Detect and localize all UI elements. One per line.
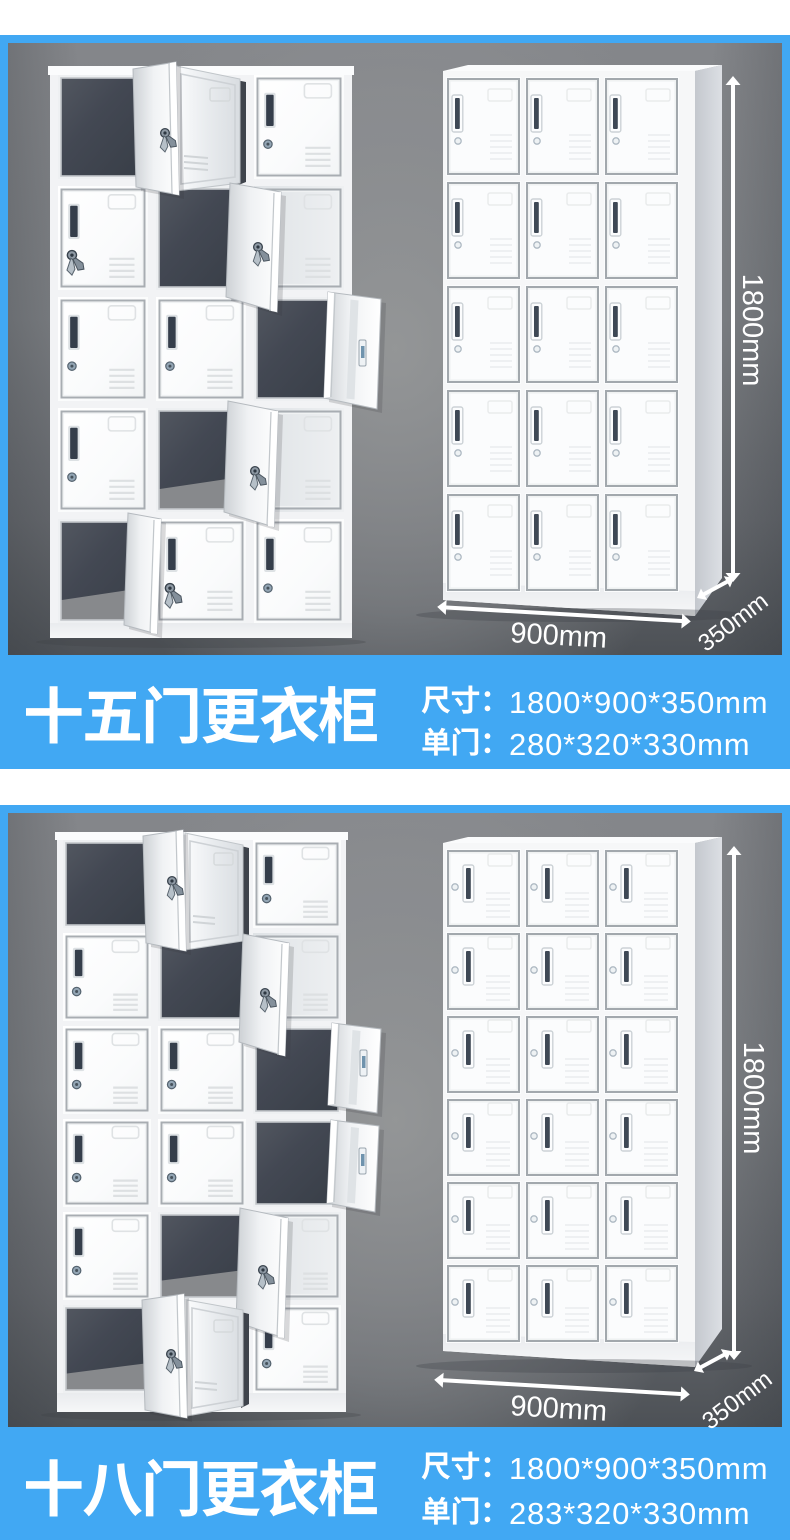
svg-text:1800*900*350mm: 1800*900*350mm — [509, 685, 768, 720]
svg-text:1800*900*350mm: 1800*900*350mm — [509, 1451, 768, 1486]
svg-text:1800mm: 1800mm — [736, 274, 768, 387]
svg-text:1800mm: 1800mm — [737, 1042, 769, 1155]
svg-text:283*320*330mm: 283*320*330mm — [509, 1496, 750, 1531]
svg-text:280*320*330mm: 280*320*330mm — [509, 727, 750, 762]
svg-text:900mm: 900mm — [510, 617, 608, 655]
svg-text:900mm: 900mm — [510, 1390, 608, 1428]
